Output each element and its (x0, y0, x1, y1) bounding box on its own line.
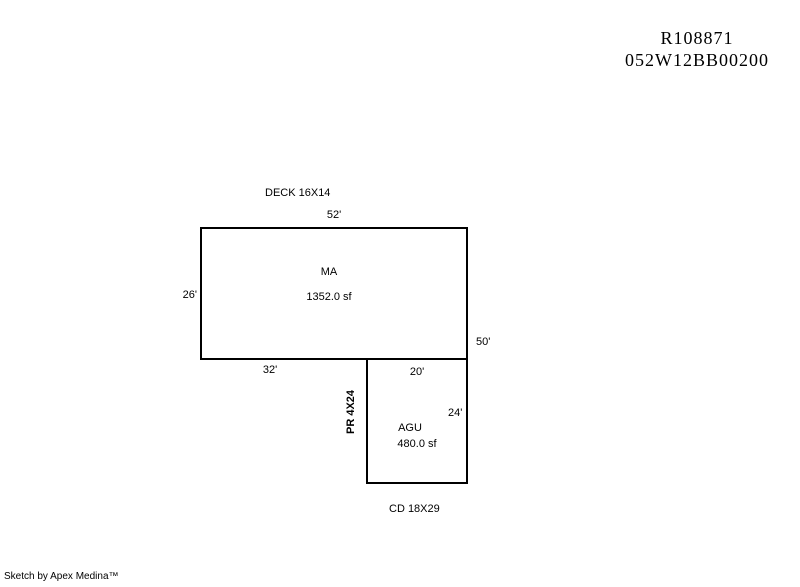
deck-label: DECK 16X14 (265, 187, 330, 199)
garage-area-label: AGU (366, 422, 454, 434)
main-area-label: MA (200, 266, 458, 278)
parcel-number: 052W12BB00200 (572, 49, 800, 71)
property-identifiers: R108871 052W12BB00200 (572, 27, 800, 71)
garage-dim-top: 20' (366, 366, 468, 378)
main-area-sqft: 1352.0 sf (200, 291, 458, 303)
sketch-page: R108871 052W12BB00200 DECK 16X14 52' MA … (0, 0, 800, 587)
main-dim-left: 26' (156, 289, 197, 301)
main-dim-right: 50' (476, 336, 490, 348)
record-number: R108871 (572, 27, 800, 49)
carport-label: CD 18X29 (389, 503, 440, 515)
main-dim-bottom: 32' (200, 364, 340, 376)
garage-area-sqft: 480.0 sf (366, 438, 468, 450)
porch-label: PR 4X24 (345, 384, 359, 440)
main-dim-top: 52' (200, 209, 468, 221)
garage-dim-right: 24' (448, 407, 462, 419)
sketch-credit: Sketch by Apex Medina™ (4, 571, 119, 582)
